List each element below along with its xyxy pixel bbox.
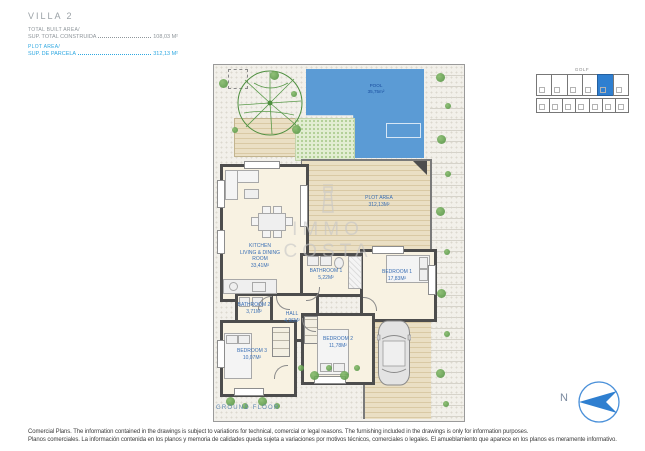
shower [348,256,362,289]
room-label-bedroom1: BEDROOM 1 17,83m² [372,269,422,282]
disclaimer: Comercial Plans. The information contain… [28,429,628,445]
built-area-value: 108,03 M² [153,34,178,40]
plant-icon [437,135,446,144]
bedroom1-area: 17,83m² [372,276,422,283]
compass-icon [572,378,624,426]
kitchen-area: 33,41m² [232,263,288,270]
plant-icon [310,371,319,380]
header: VILLA 2 TOTAL BUILT AREA/ SUP. TOTAL CON… [28,11,198,57]
room-label-pool: POOL 35,75m² [346,83,406,95]
site-plan-row-top [536,74,628,96]
chair [251,217,259,226]
window [244,161,280,169]
room-label-hall: HALL 4,96m² [274,311,310,324]
site-plot-cell [613,74,629,96]
cooktop [252,282,266,292]
bathroom1-name: BATHROOM 1 [304,268,348,275]
chair [285,217,293,226]
plot-boundary: POOL 35,75m² PLOT AREA 312,13m² [213,64,465,422]
pillow [226,335,238,344]
window [217,230,225,254]
plan-sheet: VILLA 2 TOTAL BUILT AREA/ SUP. TOTAL CON… [0,0,645,451]
plant-icon [219,79,228,88]
room-label-plot-area: PLOT AREA 312,13m² [344,195,414,208]
coffee-table [244,189,259,199]
plant-icon [436,73,445,82]
window [372,246,404,254]
site-plot-cell [615,98,629,113]
room-label-bathroom2: BATHROOM 2 3,71m² [232,302,276,315]
paving-strip [430,65,464,421]
plot-area-size: 312,13m² [344,202,414,209]
villa-title: VILLA 2 [28,11,198,21]
room-label-bedroom3: BEDROOM 3 10,07m² [228,348,276,361]
site-plot-cell [536,74,552,96]
chair [273,230,282,238]
bedroom2-area: 11,78m² [314,343,362,350]
site-plot-cell [562,98,576,113]
built-area-line: SUP. TOTAL CONSTRUIDA 108,03 M² [28,33,178,40]
bathroom1-area: 5,22m² [304,275,348,282]
deck-corner-marker [413,161,427,175]
plot-area-value: 312,13 M² [153,51,178,57]
plant-icon [326,365,332,371]
site-plot-cell [582,74,598,96]
window [428,265,436,295]
site-plan-caption: GOLF [536,67,628,72]
site-plot-cell [536,98,550,113]
room-label-kitchen: KITCHEN LIVING & DINING ROOM 33,41m² [232,243,288,269]
built-area-name: SUP. TOTAL CONSTRUIDA [28,34,96,40]
site-plot-cell [589,98,603,113]
disclaimer-es: Planos comerciales. La información conte… [28,437,628,445]
chair [273,206,282,214]
sink [320,256,332,266]
plant-icon [437,289,446,298]
window [217,340,225,368]
sliding-door [300,185,308,227]
leader-dots [78,50,151,55]
sink [307,256,319,266]
room-label-bedroom2: BEDROOM 2 11,78m² [314,336,362,349]
plant-icon [444,331,450,337]
bathroom2-area: 3,71m² [232,309,276,316]
plant-icon [436,207,445,216]
room-label-bathroom1: BATHROOM 1 5,22m² [304,268,348,281]
bathroom2-name: BATHROOM 2 [232,302,276,309]
site-plot-cell [575,98,589,113]
hall-area: 4,96m² [274,318,310,325]
pool-steps [386,123,421,138]
site-plot-cell [551,74,567,96]
pillow [238,335,250,344]
plot-area-name: SUP. DE PARCELA [28,51,76,57]
car-icon [377,319,411,387]
bedroom3-area: 10,07m² [228,355,276,362]
north-label: N [560,392,568,404]
site-plot-cell [567,74,583,96]
site-plot-cell [549,98,563,113]
plant-icon [298,365,304,371]
plant-icon [340,371,349,380]
window [234,388,264,396]
leader-dots [98,33,151,38]
plant-icon [443,401,449,407]
plot-area-line: SUP. DE PARCELA 312,13 M² [28,50,178,57]
floor-label: GROUND FLOOR [216,405,279,411]
plant-icon [445,103,451,109]
kitchen-sink [229,282,238,291]
plant-icon [270,71,279,80]
plant-icon [232,127,238,133]
plant-icon [436,369,445,378]
chair [262,206,271,214]
dining-table [258,213,286,231]
plant-icon [291,91,297,97]
sofa [225,170,238,200]
plant-icon [445,171,451,177]
pillow [419,257,428,269]
pool-area: 35,75m² [346,89,406,95]
site-plot-cell-highlighted [597,74,613,96]
plant-icon [354,365,360,371]
site-plot-cell [602,98,616,113]
site-plan-row-bottom [536,98,628,113]
disclaimer-en: Comercial Plans. The information contain… [28,429,628,437]
compass: N [560,378,630,426]
plant-icon [292,125,301,134]
site-key-plan: GOLF [536,67,628,113]
plant-icon [444,249,450,255]
window [217,180,225,208]
chair [262,230,271,238]
